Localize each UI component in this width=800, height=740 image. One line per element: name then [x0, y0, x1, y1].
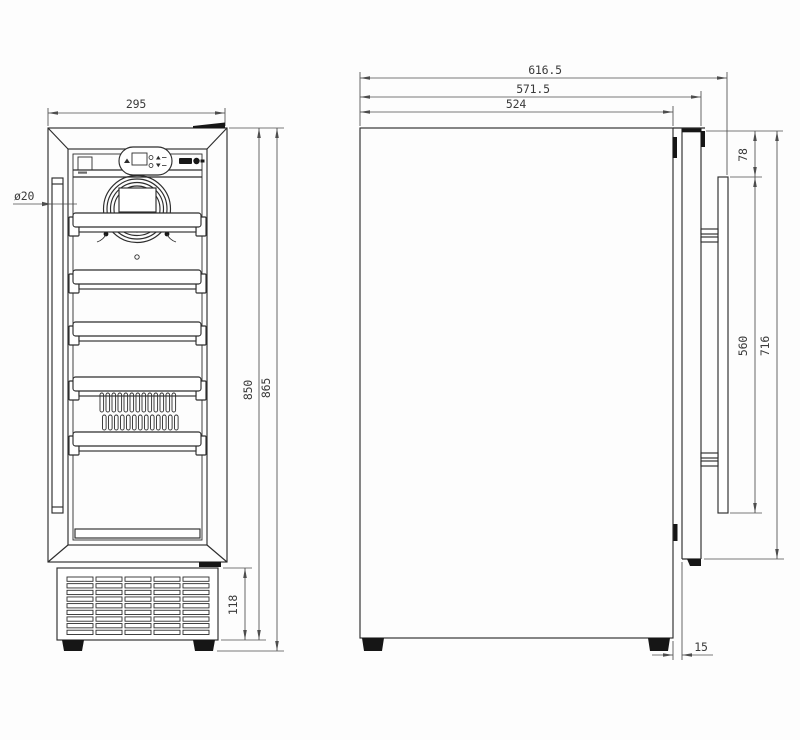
front-right-foot	[193, 640, 215, 651]
handle-standoff-bottom	[701, 453, 718, 458]
upper-hinge-mark	[673, 137, 678, 158]
overall-depth-dim: 616.5	[360, 63, 727, 175]
rack-slot	[109, 415, 113, 430]
door-clearance-label: 15	[694, 640, 707, 654]
technical-drawing: 295	[0, 0, 800, 740]
shelf	[69, 432, 206, 455]
wine-rack-slots	[100, 393, 178, 430]
front-door-handle	[52, 178, 63, 513]
door-hinge-top-mark	[701, 131, 705, 147]
lower-hinge-mark	[674, 524, 678, 541]
door-front-depth-label: 571.5	[516, 82, 550, 96]
plinth-trim-mark	[199, 562, 221, 567]
height-dim-850: 850	[221, 128, 284, 640]
handle-offset-dim: 78	[730, 131, 762, 177]
height-850-label: 850	[241, 380, 255, 400]
cabinet-depth-label: 524	[506, 97, 526, 111]
rack-slot	[139, 415, 143, 430]
rack-slot	[133, 415, 137, 430]
shelf	[69, 322, 206, 345]
base-plinth	[57, 562, 221, 640]
shelf	[69, 377, 206, 400]
shelf-rack	[69, 213, 206, 455]
shelf	[69, 270, 206, 293]
side-left-foot	[362, 638, 384, 651]
front-width-label: 295	[126, 97, 146, 111]
rack-slot	[145, 415, 149, 430]
front-left-foot	[62, 640, 84, 651]
dimension-drawing-page: 295	[0, 0, 800, 740]
door-front-depth-dim: 571.5	[360, 82, 701, 126]
rack-slot	[175, 415, 179, 430]
rack-slot	[121, 415, 125, 430]
handle-offset-label: 78	[736, 148, 750, 162]
side-right-foot	[648, 638, 670, 651]
rack-slot	[157, 415, 161, 430]
screw-dot	[135, 255, 139, 259]
height-865-label: 865	[259, 378, 273, 398]
power-switch	[78, 157, 92, 170]
side-body-outline	[360, 128, 705, 638]
side-view: 616.5 571.5 524	[360, 63, 784, 660]
switch-label-mark	[78, 172, 87, 174]
rack-slot	[103, 415, 107, 430]
door-bottom-mark	[687, 559, 701, 566]
handle-diameter-label: ø20	[14, 189, 34, 203]
control-panel	[73, 147, 205, 177]
bottom-sill	[75, 529, 200, 538]
shelf-front-bar	[73, 322, 201, 336]
shelf	[69, 213, 206, 236]
rack-slot	[169, 415, 173, 430]
rack-slot	[163, 415, 167, 430]
shelf-front-bar	[73, 377, 201, 391]
rack-slot	[151, 415, 155, 430]
front-width-dim: 295	[48, 97, 225, 126]
brand-logo-mark	[179, 158, 205, 164]
handle-length-label: 560	[736, 336, 750, 356]
shelf-front-bar	[73, 213, 201, 227]
door-height-label: 716	[758, 336, 772, 356]
overall-depth-label: 616.5	[528, 63, 562, 77]
base-height-label: 118	[226, 595, 240, 615]
handle-diameter-dim: ø20	[13, 189, 77, 206]
handle-standoff-top	[701, 229, 718, 234]
rack-slot	[127, 415, 131, 430]
base-height-dim: 118	[223, 568, 252, 640]
front-view: 295	[13, 97, 284, 651]
rack-slot	[115, 415, 119, 430]
top-trim-mark	[193, 123, 225, 129]
door-top-trim-mark	[682, 129, 701, 133]
shelf-front-bar	[73, 432, 201, 446]
cabinet-depth-dim: 524	[360, 97, 673, 126]
shelf-front-bar	[73, 270, 201, 284]
side-door-panel	[673, 128, 706, 566]
side-door-handle	[701, 177, 728, 513]
